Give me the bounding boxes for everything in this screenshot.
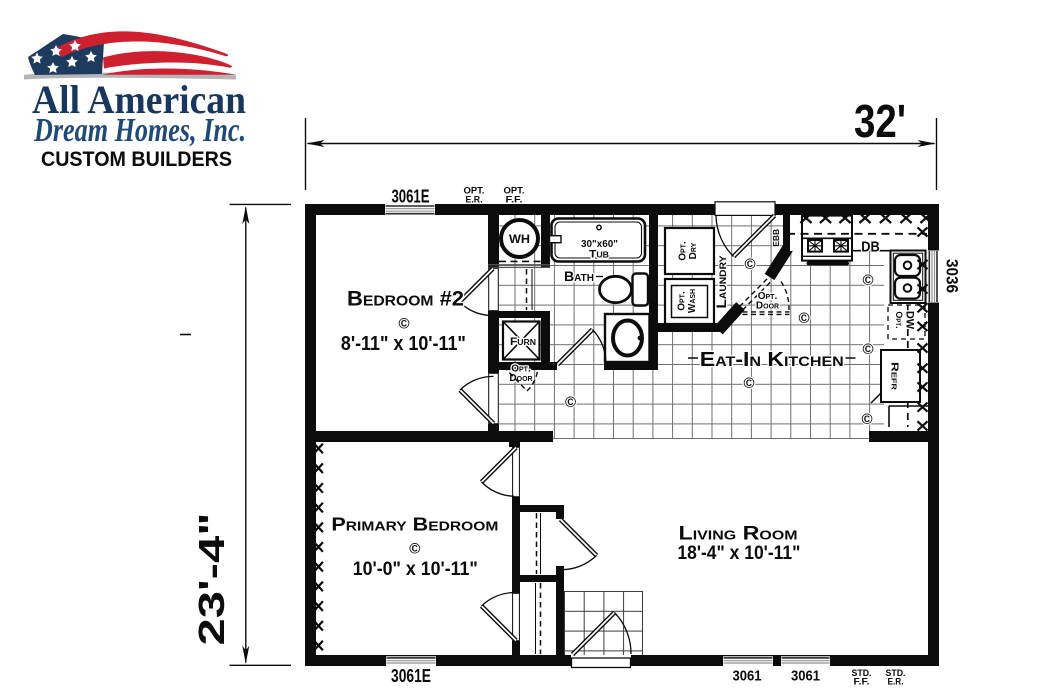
svg-text:©: ©: [861, 411, 872, 428]
svg-text:Refr: Refr: [889, 362, 901, 390]
svg-text:Primary Bedroom: Primary Bedroom: [331, 515, 498, 535]
svg-text:32': 32': [854, 95, 906, 147]
svg-text:EBB: EBB: [771, 229, 781, 247]
svg-text:Door: Door: [509, 373, 532, 384]
svg-text:©: ©: [743, 375, 754, 392]
svg-text:F.F.: F.F.: [854, 677, 870, 688]
svg-text:3061E: 3061E: [392, 187, 430, 207]
svg-text:3061E: 3061E: [391, 666, 431, 686]
svg-text:E.R.: E.R.: [888, 677, 904, 688]
svg-text:©: ©: [409, 541, 420, 558]
svg-text:©: ©: [565, 394, 576, 411]
svg-text:E.R.: E.R.: [466, 195, 483, 206]
svg-text:Bedroom #2: Bedroom #2: [347, 288, 464, 311]
svg-text:Door: Door: [756, 301, 779, 312]
svg-text:CUSTOM BUILDERS: CUSTOM BUILDERS: [41, 148, 232, 171]
svg-text:WH: WH: [509, 234, 530, 246]
svg-text:Dream Homes, Inc.: Dream Homes, Inc.: [33, 112, 246, 149]
svg-text:10'-0" x 10'-11": 10'-0" x 10'-11": [353, 559, 478, 580]
svg-text:Dry: Dry: [688, 242, 699, 259]
svg-text:Eat-In Kitchen: Eat-In Kitchen: [700, 349, 844, 371]
svg-text:3036: 3036: [943, 259, 962, 293]
svg-text:Wash: Wash: [687, 289, 698, 313]
svg-text:8'-11" x 10'-11": 8'-11" x 10'-11": [341, 333, 466, 355]
svg-text:Opt.: Opt.: [894, 311, 904, 328]
svg-text:F.F.: F.F.: [506, 195, 523, 206]
svg-text:DW: DW: [904, 311, 916, 330]
svg-text:Living Room: Living Room: [679, 523, 798, 544]
svg-text:3061: 3061: [733, 668, 762, 685]
svg-text:Bath: Bath: [564, 268, 594, 284]
svg-text:Furn: Furn: [510, 336, 536, 348]
svg-text:©: ©: [744, 256, 755, 273]
svg-text:Tub: Tub: [589, 249, 609, 261]
svg-text:Laundry: Laundry: [714, 256, 729, 309]
svg-text:Opt.: Opt.: [677, 291, 688, 311]
svg-text:18'-4" x 10'-11": 18'-4" x 10'-11": [677, 543, 800, 564]
svg-text:DB: DB: [861, 239, 880, 256]
svg-text:Opt.: Opt.: [678, 241, 689, 261]
svg-text:©: ©: [862, 272, 873, 289]
svg-text:©: ©: [798, 310, 809, 327]
svg-text:©: ©: [398, 316, 409, 333]
svg-text:©: ©: [862, 341, 873, 358]
svg-text:3061: 3061: [791, 668, 820, 685]
svg-text:23'-4": 23'-4": [191, 513, 232, 646]
